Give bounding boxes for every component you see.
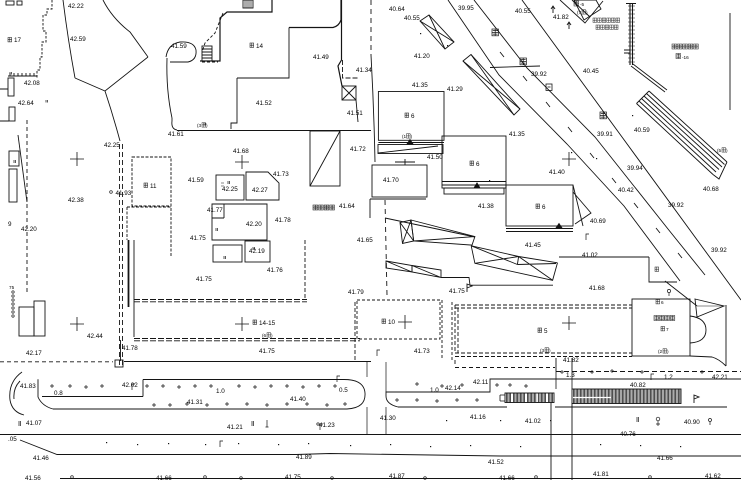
svg-text:42.17: 42.17	[26, 350, 42, 357]
svg-text:40.76: 40.76	[620, 431, 636, 438]
svg-text:41.75: 41.75	[285, 474, 301, 480]
svg-text:41.64: 41.64	[339, 203, 355, 210]
svg-text:41.93: 41.93	[116, 190, 132, 197]
svg-text:(3: (3	[540, 348, 545, 353]
svg-text:42.14: 42.14	[445, 385, 461, 392]
svg-text:41.70: 41.70	[383, 177, 399, 184]
svg-text:40.90: 40.90	[684, 419, 700, 426]
svg-text:42.19: 42.19	[249, 248, 265, 255]
svg-text:41.77: 41.77	[207, 207, 223, 214]
svg-text:41.79: 41.79	[348, 289, 364, 296]
svg-text:41.34: 41.34	[356, 67, 372, 74]
svg-text:41.21: 41.21	[227, 424, 243, 431]
svg-text:42.27: 42.27	[252, 187, 268, 194]
svg-text:41.73: 41.73	[414, 348, 430, 355]
svg-text:41.87: 41.87	[389, 473, 405, 480]
svg-text:39.92: 39.92	[668, 202, 684, 209]
svg-text:41.59: 41.59	[171, 43, 187, 50]
svg-text:75: 75	[9, 285, 15, 290]
svg-text:41.30: 41.30	[380, 415, 396, 422]
svg-text:41.75: 41.75	[190, 235, 206, 242]
svg-text:41.45: 41.45	[525, 242, 541, 249]
svg-text:.05: .05	[8, 436, 17, 443]
svg-text:41.50: 41.50	[427, 154, 443, 161]
svg-text:1.2: 1.2	[664, 374, 673, 381]
svg-text:-5: -5	[580, 2, 585, 7]
svg-text:6: 6	[542, 204, 546, 211]
svg-text:41.78: 41.78	[122, 345, 138, 352]
svg-text:41.35: 41.35	[509, 131, 525, 138]
svg-text:0.5: 0.5	[339, 387, 348, 394]
svg-text:41.61: 41.61	[168, 131, 184, 138]
svg-text:42.20: 42.20	[246, 221, 262, 228]
svg-text:41.40: 41.40	[549, 169, 565, 176]
svg-text:1.3: 1.3	[566, 372, 575, 379]
svg-text:41.75: 41.75	[449, 288, 465, 295]
svg-text:41.89: 41.89	[296, 454, 312, 461]
svg-text:40.59: 40.59	[634, 127, 650, 134]
svg-text:17: 17	[14, 37, 22, 44]
svg-text:39.95: 39.95	[458, 5, 474, 12]
svg-text:41.16: 41.16	[470, 414, 486, 421]
svg-text:9: 9	[8, 221, 12, 228]
svg-text:6: 6	[411, 113, 415, 120]
svg-text:(2: (2	[658, 349, 663, 354]
svg-text:41.73: 41.73	[273, 171, 289, 178]
svg-text:41.66: 41.66	[499, 475, 515, 480]
svg-text:41.62: 41.62	[705, 473, 721, 480]
svg-text:41.66: 41.66	[657, 455, 673, 462]
svg-text:40.82: 40.82	[630, 382, 646, 389]
svg-text:(6: (6	[262, 333, 267, 338]
svg-text:42.38: 42.38	[68, 197, 84, 204]
svg-text:11: 11	[150, 183, 157, 190]
svg-text:41.49: 41.49	[313, 54, 329, 61]
svg-text:41.40: 41.40	[290, 396, 306, 403]
svg-text:41.75: 41.75	[196, 276, 212, 283]
svg-text:41.78: 41.78	[275, 217, 291, 224]
svg-text:40.64: 40.64	[389, 6, 405, 13]
svg-text:41.76: 41.76	[267, 267, 283, 274]
svg-text:41.65: 41.65	[357, 237, 373, 244]
svg-text:1.0: 1.0	[216, 388, 225, 395]
svg-text:39.92: 39.92	[711, 247, 727, 254]
svg-text:41.35: 41.35	[412, 82, 428, 89]
svg-text:41.82: 41.82	[553, 14, 569, 21]
svg-text:39.94: 39.94	[627, 165, 643, 172]
svg-text:14-15: 14-15	[259, 320, 276, 327]
svg-text:41.02: 41.02	[582, 252, 598, 259]
svg-text:42.11: 42.11	[473, 379, 489, 386]
svg-text:1.0: 1.0	[430, 387, 439, 394]
svg-text:42.59: 42.59	[70, 36, 86, 43]
svg-text:0.8: 0.8	[54, 390, 63, 397]
svg-text:41.66: 41.66	[156, 475, 172, 480]
svg-text:7: 7	[666, 327, 669, 332]
svg-text:40.69: 40.69	[590, 218, 606, 225]
svg-text:(3: (3	[197, 123, 202, 128]
svg-text:6: 6	[476, 161, 480, 168]
svg-text:42.08: 42.08	[24, 80, 40, 87]
svg-text:41.29: 41.29	[447, 86, 463, 93]
svg-text:41.52: 41.52	[256, 100, 272, 107]
svg-text:5: 5	[544, 328, 548, 335]
svg-text:41.52: 41.52	[488, 459, 504, 466]
svg-text:41.02: 41.02	[525, 418, 541, 425]
svg-text:41.51: 41.51	[347, 110, 363, 117]
svg-text:41.20: 41.20	[414, 53, 430, 60]
svg-text:41.59: 41.59	[188, 177, 204, 184]
svg-text:39.91: 39.91	[597, 131, 613, 138]
svg-text:41.82: 41.82	[563, 357, 579, 364]
svg-text:41.68: 41.68	[233, 148, 249, 155]
svg-text:42.25: 42.25	[222, 186, 238, 193]
svg-text:42.20: 42.20	[21, 226, 37, 233]
svg-text:(1: (1	[402, 134, 407, 139]
svg-text:10: 10	[388, 319, 396, 326]
svg-text:42.64: 42.64	[18, 100, 34, 107]
svg-text:42.25: 42.25	[104, 142, 120, 149]
svg-text:42.44: 42.44	[87, 333, 103, 340]
svg-text:6: 6	[661, 300, 664, 305]
svg-text:41.31: 41.31	[187, 399, 203, 406]
svg-text:40.42: 40.42	[618, 187, 634, 194]
svg-text:42.22: 42.22	[68, 3, 84, 10]
svg-text:41.07: 41.07	[26, 420, 42, 427]
svg-text:(7: (7	[577, 10, 582, 15]
svg-text:40.68: 40.68	[703, 186, 719, 193]
svg-text:40.55: 40.55	[404, 15, 420, 22]
svg-text:(5: (5	[717, 148, 722, 153]
svg-text:42.21: 42.21	[712, 374, 728, 381]
svg-text:-16: -16	[682, 55, 689, 60]
svg-text:42.02: 42.02	[122, 382, 138, 389]
svg-text:41.81: 41.81	[593, 471, 609, 478]
svg-text:41.46: 41.46	[33, 455, 49, 462]
svg-text:14: 14	[256, 43, 264, 50]
svg-text:41.56: 41.56	[25, 475, 41, 480]
svg-text:41.75: 41.75	[259, 348, 275, 355]
svg-text:41.83: 41.83	[20, 383, 36, 390]
svg-text:41.23: 41.23	[319, 422, 335, 429]
svg-text:40.45: 40.45	[583, 68, 599, 75]
svg-text:41.68: 41.68	[589, 285, 605, 292]
svg-text:39.92: 39.92	[531, 71, 547, 78]
svg-text:40.55: 40.55	[515, 8, 531, 15]
svg-text:41.72: 41.72	[350, 146, 366, 153]
svg-text:41.38: 41.38	[478, 203, 494, 210]
